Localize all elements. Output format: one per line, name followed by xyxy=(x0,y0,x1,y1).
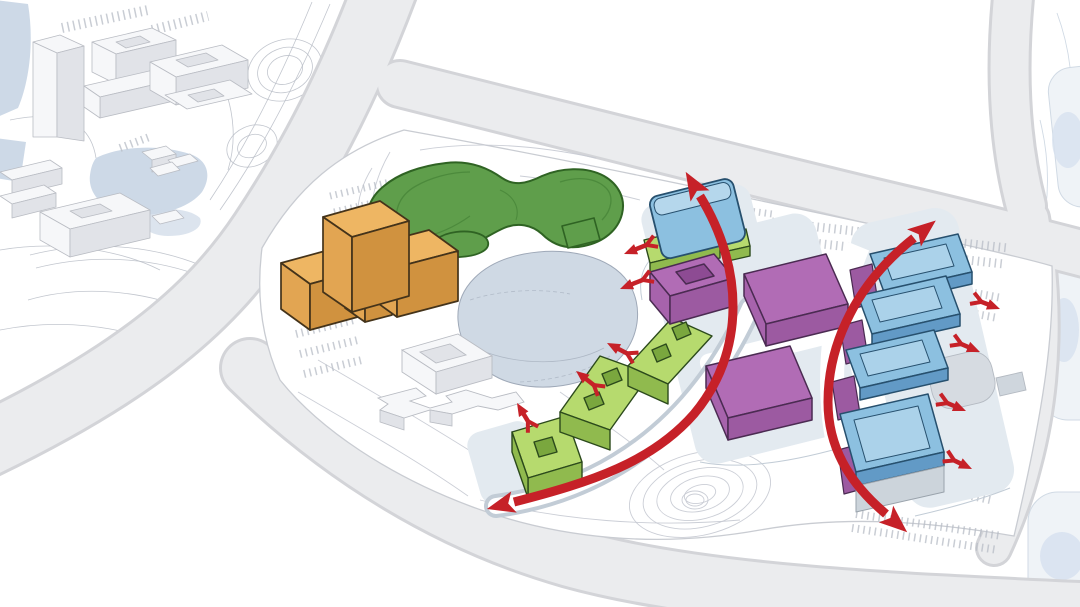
masterplan-canvas xyxy=(0,0,1080,607)
